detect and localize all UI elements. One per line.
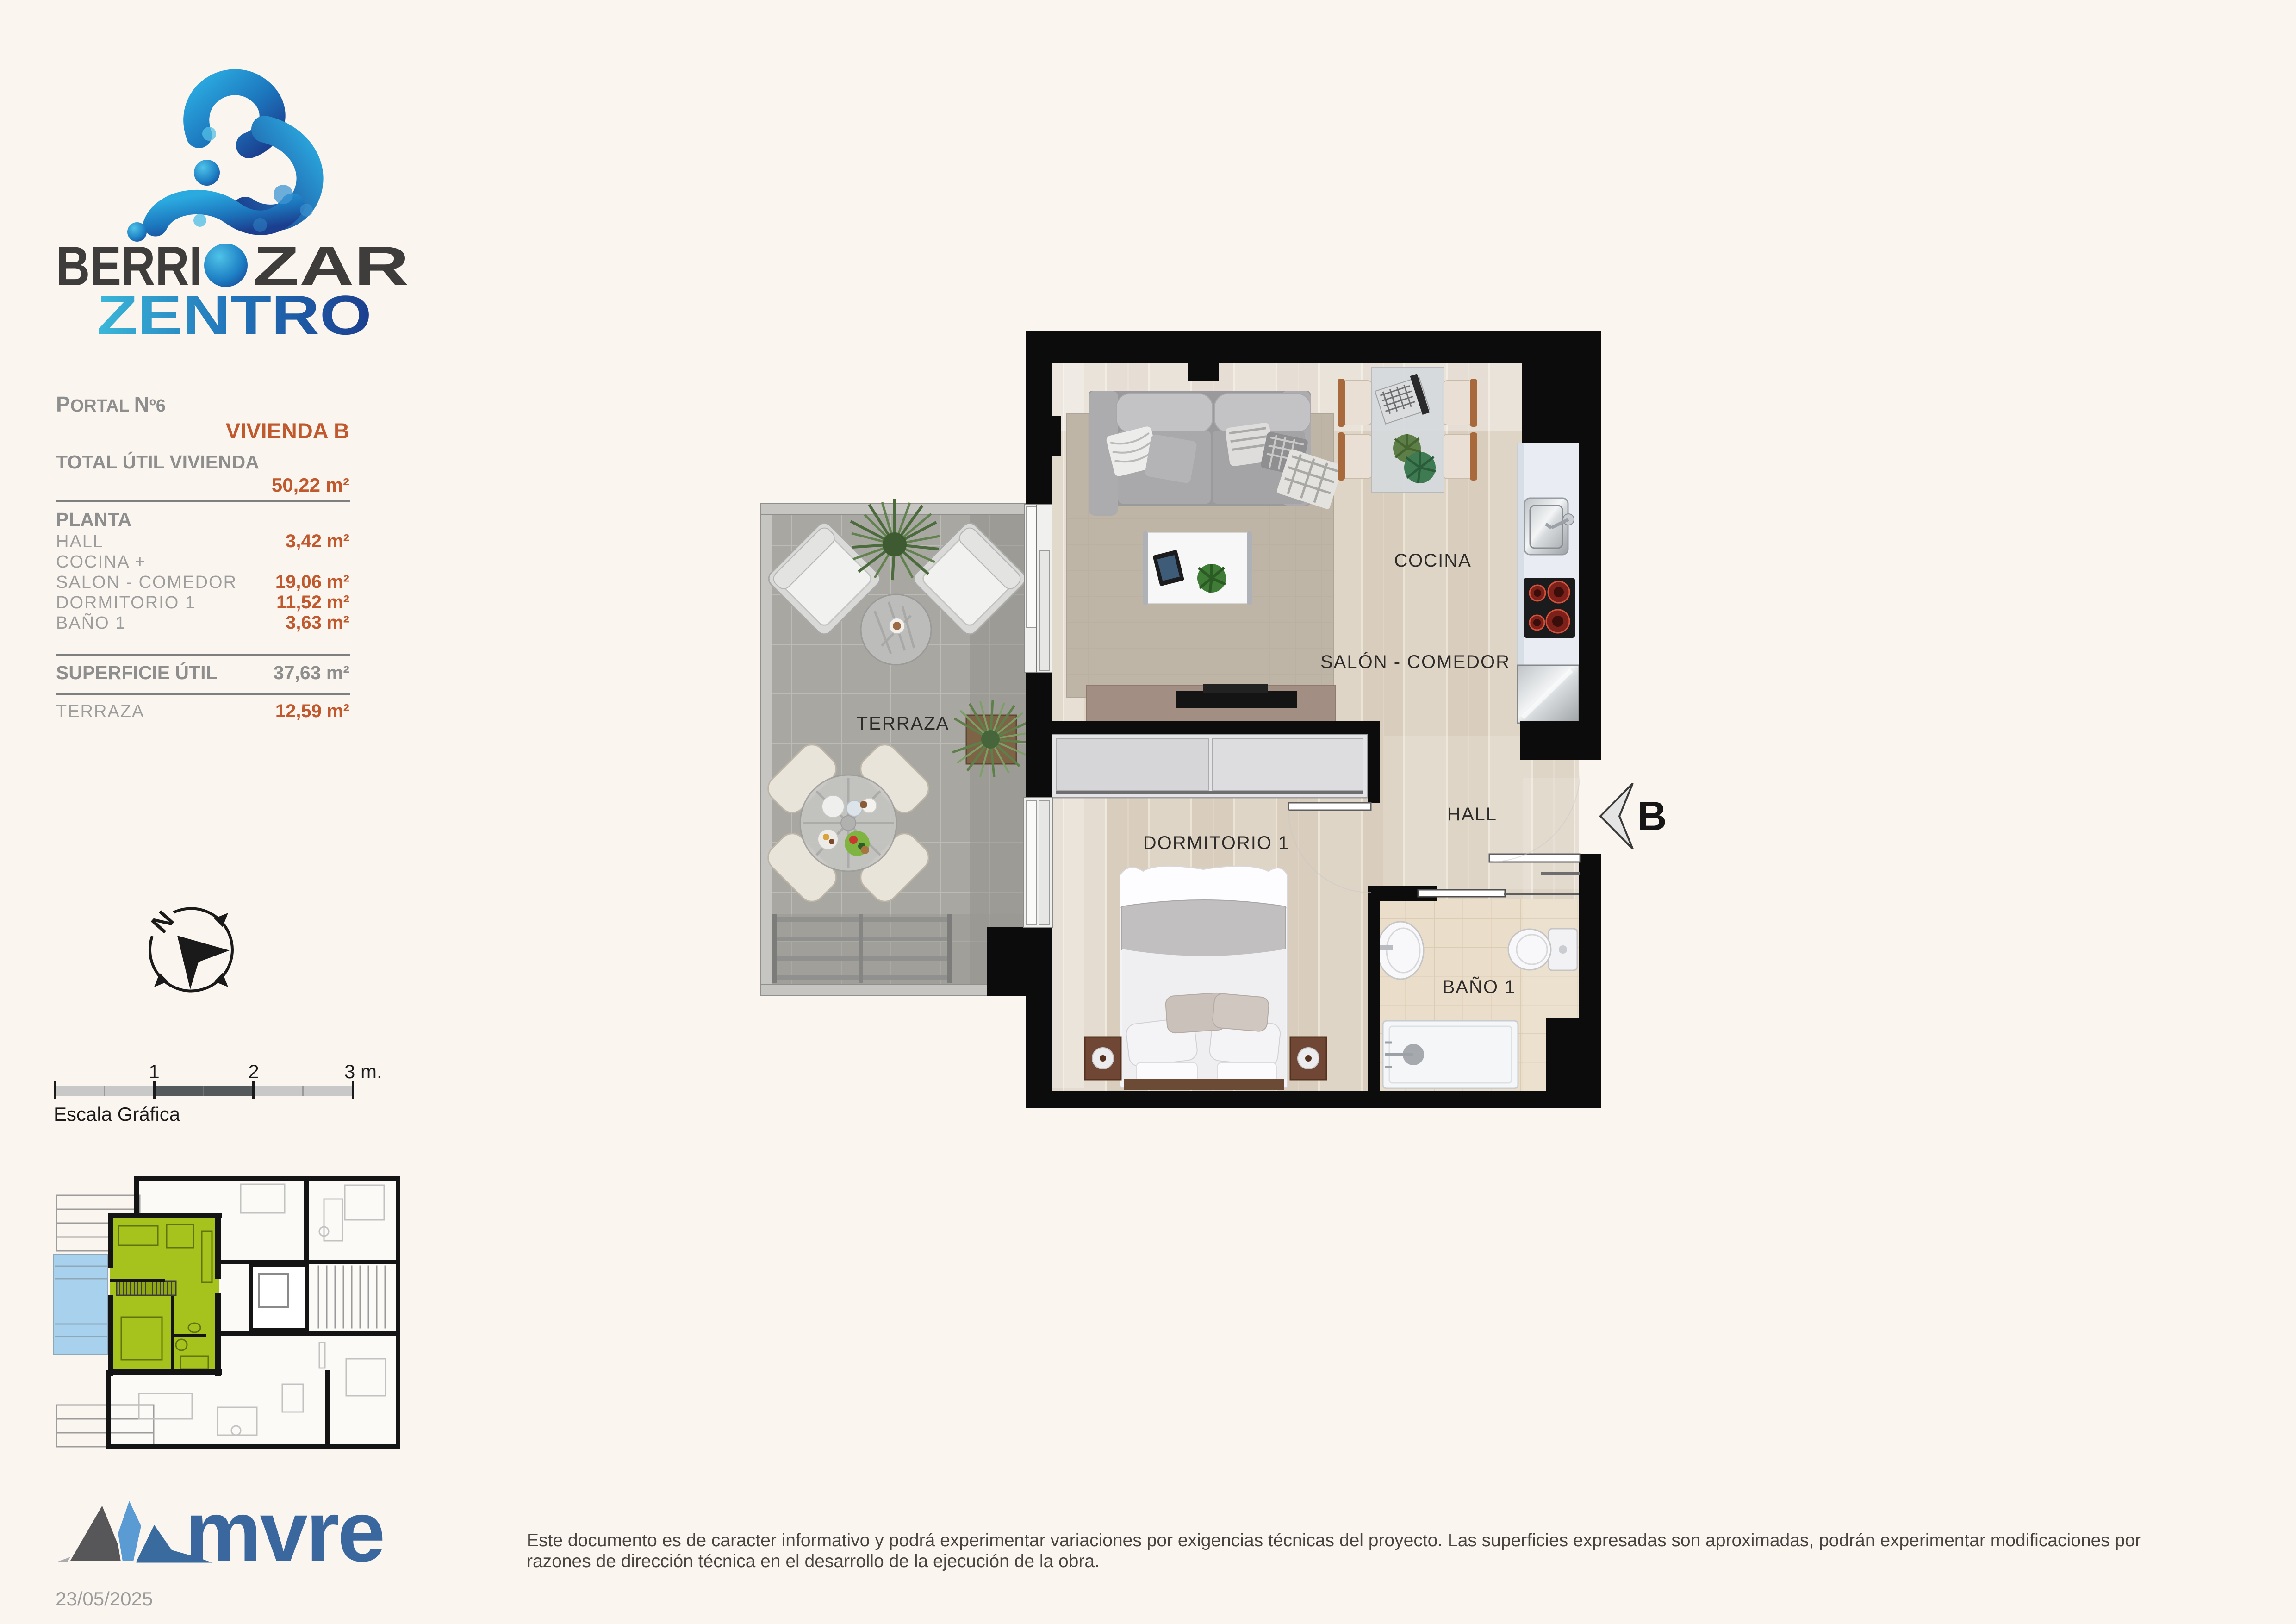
- svg-text:BAÑO 1: BAÑO 1: [56, 613, 126, 633]
- svg-text:23/05/2025: 23/05/2025: [56, 1588, 153, 1610]
- svg-text:1: 1: [149, 1061, 159, 1082]
- svg-text:razones de dirección técnica e: razones de dirección técnica en el desar…: [527, 1551, 1100, 1571]
- svg-text:12,59 m²: 12,59 m²: [275, 701, 349, 721]
- svg-text:VIVIENDA B: VIVIENDA B: [226, 418, 349, 443]
- svg-text:TERRAZA: TERRAZA: [857, 713, 950, 734]
- svg-text:HALL: HALL: [56, 532, 104, 551]
- svg-text:DORMITORIO 1: DORMITORIO 1: [56, 593, 196, 612]
- svg-text:HALL: HALL: [1447, 804, 1497, 824]
- svg-text:B: B: [1637, 793, 1667, 839]
- svg-text:Escala Gráfica: Escala Gráfica: [54, 1103, 180, 1125]
- svg-text:BAÑO 1: BAÑO 1: [1443, 976, 1516, 997]
- svg-text:37,63 m²: 37,63 m²: [274, 662, 349, 683]
- svg-text:SALÓN - COMEDOR: SALÓN - COMEDOR: [1320, 651, 1510, 672]
- svg-text:TERRAZA: TERRAZA: [56, 702, 144, 721]
- svg-text:SALON - COMEDOR: SALON - COMEDOR: [56, 573, 237, 592]
- svg-text:3,42 m²: 3,42 m²: [286, 531, 349, 551]
- svg-text:mvre: mvre: [185, 1484, 384, 1580]
- svg-text:Este documento es de caracter: Este documento es de caracter informativ…: [527, 1530, 2141, 1550]
- svg-text:3 m.: 3 m.: [344, 1061, 382, 1082]
- svg-text:19,06 m²: 19,06 m²: [275, 572, 349, 592]
- svg-text:PLANTA: PLANTA: [56, 509, 131, 530]
- svg-text:COCINA +: COCINA +: [56, 552, 146, 572]
- svg-text:TOTAL ÚTIL VIVIENDA: TOTAL ÚTIL VIVIENDA: [56, 451, 259, 473]
- svg-text:50,22 m²: 50,22 m²: [272, 474, 349, 496]
- svg-text:2: 2: [248, 1061, 259, 1082]
- svg-text:11,52 m²: 11,52 m²: [276, 592, 349, 612]
- svg-text:COCINA: COCINA: [1394, 550, 1472, 571]
- svg-text:ZENTRO: ZENTRO: [97, 284, 372, 346]
- svg-text:3,63 m²: 3,63 m²: [286, 612, 349, 633]
- svg-text:DORMITORIO 1: DORMITORIO 1: [1143, 833, 1290, 853]
- svg-text:SUPERFICIE ÚTIL: SUPERFICIE ÚTIL: [56, 662, 218, 683]
